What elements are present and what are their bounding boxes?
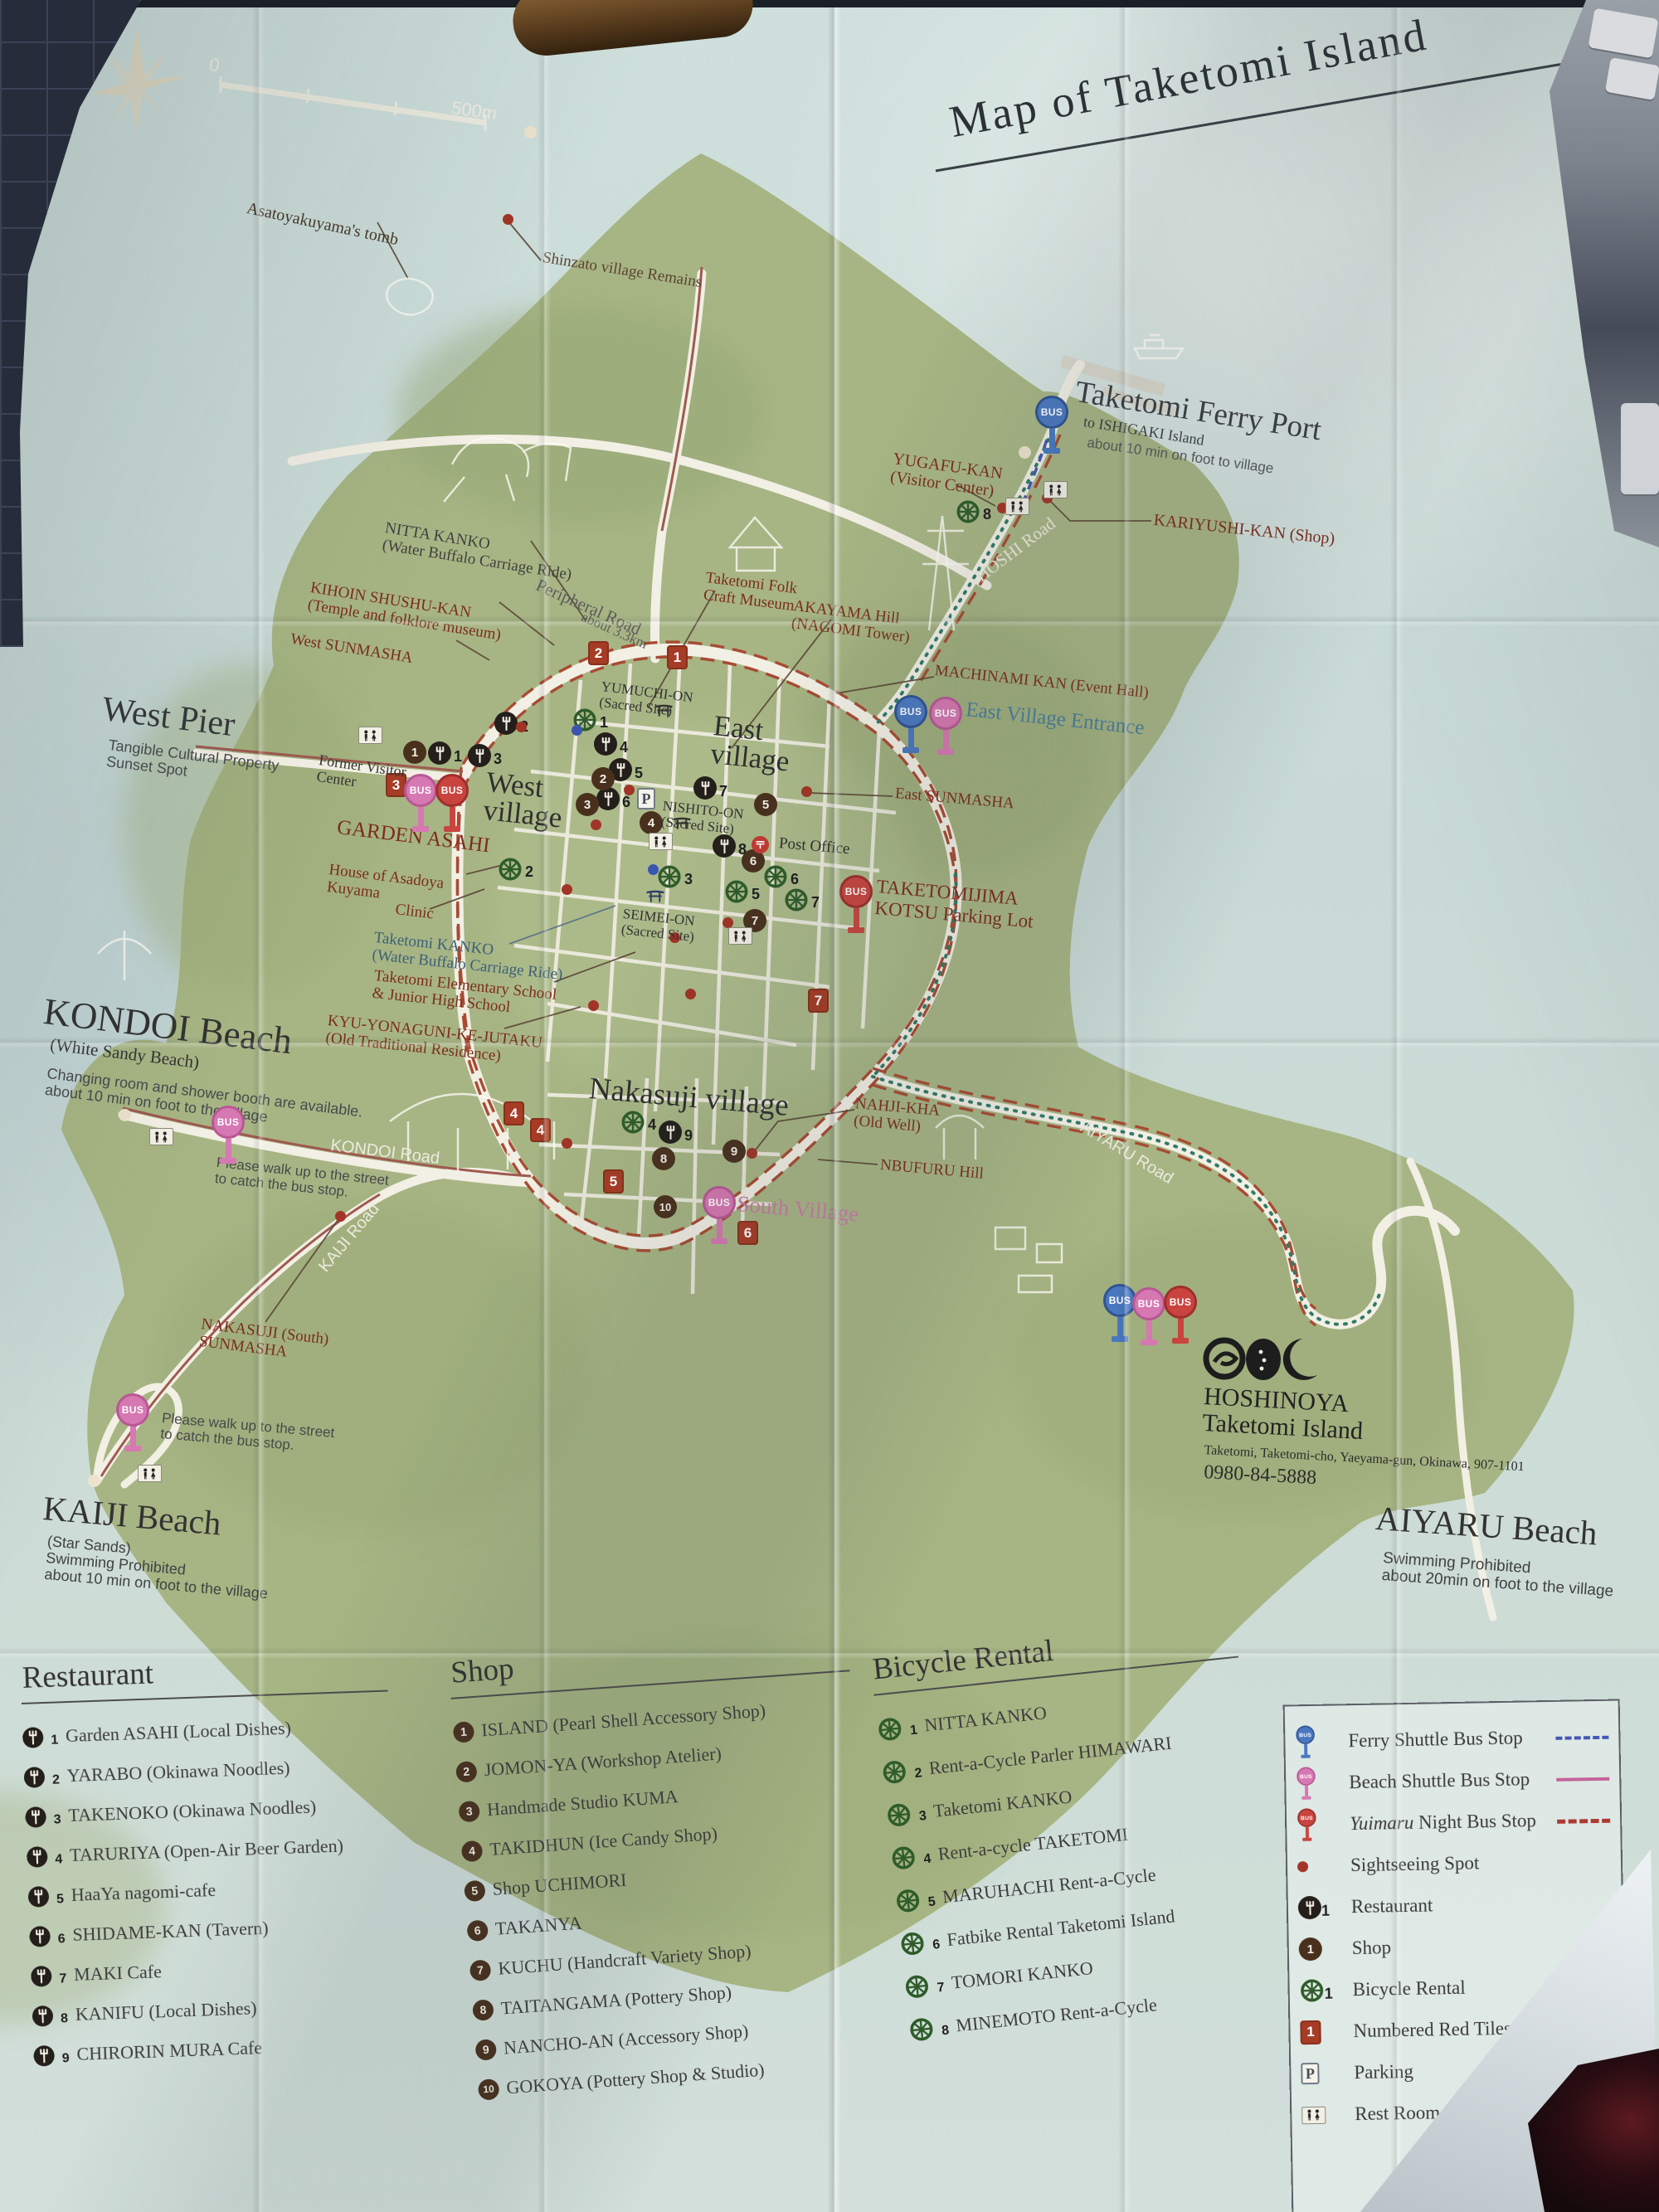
legend-shop-symbol: 1Shop: [1288, 1923, 1623, 1970]
fork-icon: [32, 2005, 54, 2026]
restaurant-marker-1: 1: [428, 741, 462, 766]
wheel-icon: [763, 864, 788, 889]
hoshinoya-red-bus-icon: BUS: [1162, 1286, 1199, 1344]
fork-icon: [28, 1885, 50, 1907]
label-nahji-kha: NAHJI-KHA (Old Well): [853, 1095, 941, 1137]
wheel-icon: [899, 1930, 927, 1957]
parking-icon: P: [1301, 2063, 1319, 2084]
kaiji-bus-icon: BUS: [114, 1393, 151, 1451]
scale-bar: [221, 76, 485, 131]
red-tile-1: 1: [667, 645, 688, 669]
restroom-icon: [138, 1465, 162, 1482]
restaurant-marker-3: 3: [468, 744, 502, 768]
legend-red-tiles: 1Numbered Red Tiles for: [1290, 2005, 1624, 2053]
pale-dot: [524, 126, 537, 139]
legend-parking: PParking: [1291, 2047, 1625, 2094]
restaurant-marker-4: 4: [594, 732, 628, 756]
label-hoshinoya-title: HOSHINOYA Taketomi Island: [1202, 1383, 1365, 1444]
wheel-icon: [903, 1973, 931, 2001]
sightseeing-dot: [685, 989, 696, 999]
wheel-icon: [885, 1801, 912, 1829]
ferry-line-sample: [1555, 1736, 1608, 1740]
sightseeing-dot-icon: [1297, 1861, 1308, 1872]
shop-marker-3: 3: [576, 793, 599, 816]
wheel-icon: [724, 879, 749, 904]
restroom-icon: [649, 833, 673, 850]
legend-restaurant-symbol: 1Restaurant: [1287, 1882, 1622, 1929]
beach-bus-icon: BUS: [1296, 1767, 1316, 1800]
fork-icon: [428, 741, 451, 765]
fork-icon: [23, 1767, 45, 1788]
fork-icon: [27, 1845, 48, 1867]
sightseeing-dot: [335, 1211, 346, 1222]
sightseeing-dot: [591, 819, 601, 830]
bike-marker-7: 7: [784, 887, 820, 912]
legend-bicycle-symbol: 1Bicycle Rental: [1289, 1964, 1623, 2011]
sightseeing-dot: [801, 786, 812, 797]
wheel-icon: [784, 887, 809, 912]
keyboard-key: [1621, 403, 1659, 494]
shop-marker-1: 1: [403, 741, 426, 764]
beach-line-sample: [1556, 1777, 1609, 1782]
legend-shop: Shop 1ISLAND (Pearl Shell Accessory Shop…: [448, 1626, 893, 2110]
pale-dot: [88, 1475, 100, 1487]
wheel-icon: [1299, 1978, 1325, 2004]
restroom-icon: [358, 727, 382, 744]
fork-icon: [33, 2044, 55, 2066]
shop-marker-5: 5: [754, 793, 777, 816]
kondoi-bus-icon: BUS: [210, 1106, 246, 1164]
blue-dot: [572, 725, 582, 736]
blue-dot: [648, 864, 659, 875]
parking-lot-bus-icon: BUS: [838, 875, 874, 933]
parking-icon: P: [637, 788, 655, 809]
red-tile-4a: 4: [504, 1101, 524, 1125]
fork-icon: [713, 834, 736, 858]
sightseeing-dot: [747, 1148, 757, 1159]
desk-edge: [0, 0, 1659, 7]
red-tile-2: 2: [588, 641, 609, 665]
restroom-icon: [1301, 2106, 1326, 2124]
pale-dot: [119, 1109, 131, 1121]
wheel-icon: [890, 1845, 917, 1872]
restroom-icon: [728, 927, 752, 945]
legend-night-bus: BUSYuimaru Night Bus Stop: [1287, 1799, 1621, 1846]
pale-dot: [1019, 446, 1031, 459]
wheel-icon: [907, 2015, 935, 2043]
fork-icon: [1298, 1896, 1321, 1919]
fork-icon: [596, 787, 620, 810]
compass-rose-icon: [91, 27, 188, 137]
restroom-icon: [1044, 481, 1068, 498]
south-village-bus-icon: BUS: [701, 1186, 737, 1244]
post-office-icon: [752, 836, 769, 853]
night-line-sample: [1557, 1819, 1610, 1824]
shop-marker-4: 4: [640, 811, 663, 834]
wheel-icon: [881, 1758, 908, 1786]
sightseeing-dot: [562, 1138, 572, 1149]
fork-icon: [659, 1121, 682, 1144]
legend-restaurant: Restaurant 1Garden ASAHI (Local Dishes) …: [20, 1647, 424, 2076]
ferry-bus-stop-icon: BUS: [1034, 396, 1070, 454]
fork-icon: [25, 1806, 46, 1828]
torii-icon: [645, 889, 665, 907]
east-entrance-pink-bus-icon: BUS: [927, 697, 964, 755]
wheel-icon: [620, 1110, 645, 1135]
fork-icon: [693, 776, 717, 800]
wheel-icon: [956, 499, 980, 524]
restaurant-marker-7: 7: [693, 776, 727, 800]
fork-icon: [22, 1727, 44, 1748]
shop-marker-2: 2: [591, 767, 615, 790]
red-tile-7: 7: [808, 989, 829, 1013]
sightseeing-dot: [516, 722, 527, 732]
fork-icon: [468, 744, 491, 767]
fork-icon: [494, 712, 518, 735]
bike-marker-5: 5: [724, 879, 760, 904]
restroom-icon: [149, 1128, 173, 1145]
legend-restroom: Rest Room: [1292, 2088, 1626, 2136]
legend-bicycle: Bicycle Rental 1NITTA KANKO 2Rent-a-Cycl…: [869, 1612, 1299, 2052]
label-east-village: East village: [709, 712, 794, 776]
restaurant-marker-9: 9: [659, 1121, 693, 1145]
sightseeing-dot: [503, 214, 513, 225]
bike-marker-3: 3: [657, 864, 693, 889]
fork-icon: [31, 1965, 52, 1986]
fork-icon: [29, 1925, 51, 1947]
wheel-icon: [876, 1715, 903, 1743]
paper-map-photo: Map of Taketomi Island 0 500m Asatoyakuy…: [0, 0, 1659, 2212]
bike-marker-6: 6: [763, 864, 799, 889]
fork-icon: [594, 732, 617, 756]
bike-marker-8: 8: [956, 499, 991, 524]
west-village-red-bus-icon: BUS: [434, 774, 470, 832]
bike-marker-4: 4: [620, 1110, 656, 1135]
label-west-village: West village: [482, 768, 567, 833]
sightseeing-dot: [588, 1000, 599, 1011]
shop-marker-10: 10: [654, 1195, 677, 1218]
legend-symbols-box: BUSFerry Shuttle Bus Stop BUSBeach Shutt…: [1283, 1699, 1629, 2212]
shop-marker-9: 9: [722, 1140, 746, 1163]
sightseeing-dot: [624, 785, 635, 795]
legend-sightseeing: Sightseeing Spot: [1287, 1840, 1622, 1888]
night-bus-icon: BUS: [1297, 1808, 1317, 1841]
red-tile-6: 6: [737, 1221, 758, 1245]
sightseeing-dot: [562, 884, 572, 895]
red-tile-4b: 4: [530, 1118, 551, 1142]
restroom-icon: [1005, 498, 1029, 515]
wheel-icon: [894, 1887, 922, 1914]
bike-marker-2: 2: [498, 857, 533, 882]
shop-marker-8: 8: [652, 1147, 675, 1170]
wheel-icon: [498, 857, 523, 882]
ferry-bus-icon: BUS: [1295, 1725, 1316, 1758]
boat-sketch: [1135, 335, 1183, 358]
red-tile-5: 5: [603, 1169, 624, 1194]
east-entrance-blue-bus-icon: BUS: [893, 695, 929, 753]
wheel-icon: [657, 864, 682, 889]
